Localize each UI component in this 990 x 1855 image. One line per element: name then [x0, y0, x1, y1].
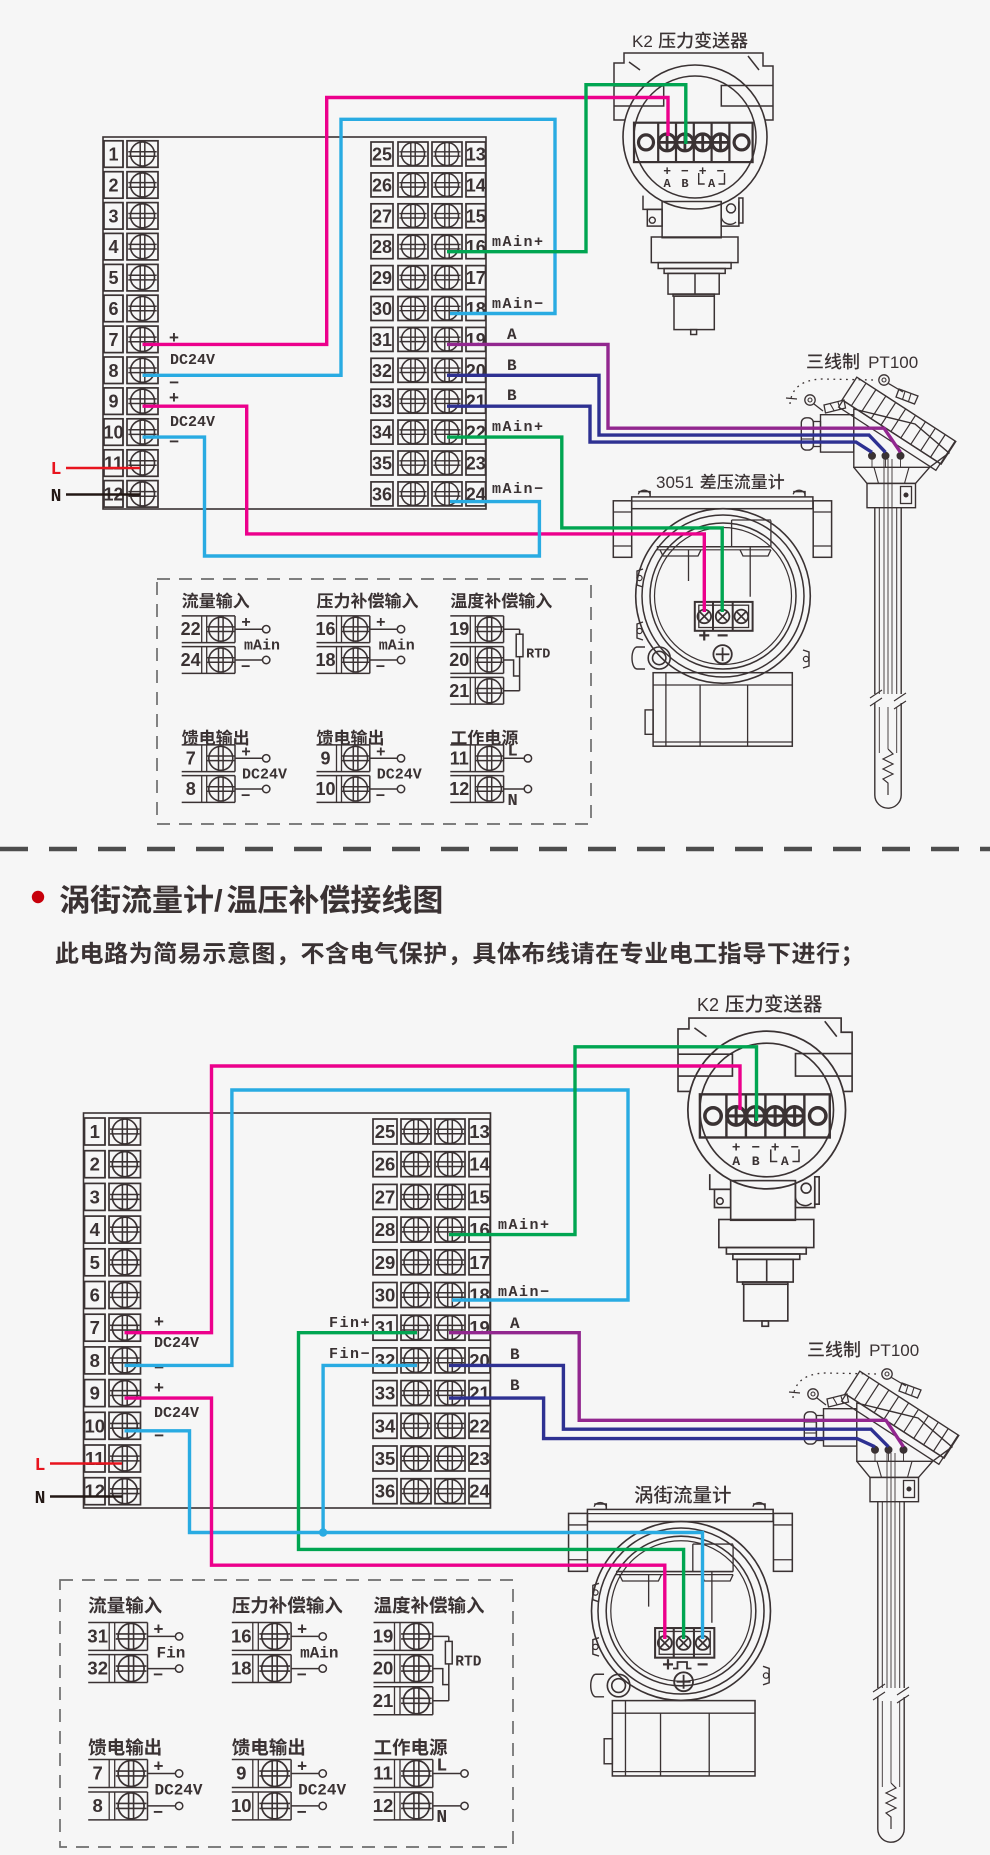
svg-text:−: −: [375, 659, 385, 677]
svg-text:12: 12: [449, 779, 469, 799]
svg-text:Fin: Fin: [157, 1645, 186, 1663]
svg-text:19: 19: [466, 330, 486, 350]
svg-text:7: 7: [108, 330, 118, 350]
svg-text:A: A: [510, 1315, 520, 1333]
svg-text:5: 5: [90, 1252, 100, 1273]
svg-text:A: A: [663, 177, 671, 191]
svg-text:9: 9: [320, 748, 330, 768]
svg-text:B: B: [507, 357, 517, 375]
svg-text:N: N: [35, 1489, 46, 1509]
svg-text:+: +: [241, 614, 251, 632]
svg-text:36: 36: [372, 484, 392, 504]
svg-text:−: −: [241, 788, 251, 806]
svg-text:A: A: [708, 177, 716, 191]
svg-text:DC24V: DC24V: [154, 1405, 199, 1422]
svg-text:17: 17: [466, 268, 486, 288]
svg-text:B: B: [681, 177, 688, 191]
svg-text:2: 2: [90, 1154, 100, 1175]
svg-text:−: −: [717, 164, 725, 179]
svg-text:+: +: [376, 614, 386, 632]
svg-text:RTD: RTD: [455, 1655, 481, 1671]
svg-text:10: 10: [85, 1415, 106, 1436]
svg-text:/: /: [214, 883, 223, 918]
svg-text:12: 12: [85, 1481, 106, 1502]
svg-text:33: 33: [375, 1383, 396, 1404]
svg-text:PT100: PT100: [869, 1341, 919, 1360]
svg-text:−: −: [717, 626, 729, 649]
svg-text:+: +: [699, 164, 707, 179]
svg-text:3: 3: [90, 1186, 100, 1207]
svg-text:31: 31: [87, 1625, 108, 1646]
svg-text:20: 20: [469, 1350, 490, 1371]
svg-text:16: 16: [469, 1219, 490, 1240]
svg-text:18: 18: [315, 650, 335, 670]
svg-text:27: 27: [375, 1186, 396, 1207]
svg-text:−: −: [296, 1804, 306, 1823]
svg-text:21: 21: [373, 1690, 394, 1711]
svg-text:16: 16: [231, 1625, 252, 1646]
svg-text:+: +: [241, 743, 251, 761]
svg-text:9: 9: [90, 1383, 100, 1404]
svg-text:32: 32: [87, 1658, 108, 1679]
svg-text:N: N: [436, 1808, 447, 1828]
svg-text:18: 18: [466, 299, 486, 319]
svg-text:mAin: mAin: [300, 1645, 338, 1663]
svg-text:6: 6: [90, 1285, 100, 1306]
svg-text:+: +: [154, 1380, 164, 1399]
svg-text:RTD: RTD: [526, 648, 550, 663]
svg-text:17: 17: [469, 1252, 490, 1273]
svg-text:24: 24: [469, 1481, 490, 1502]
svg-text:20: 20: [373, 1658, 394, 1679]
svg-text:26: 26: [375, 1154, 396, 1175]
svg-text:+: +: [662, 1655, 674, 1678]
svg-text:−: −: [296, 1667, 306, 1686]
svg-text:18: 18: [469, 1285, 490, 1306]
svg-text:31: 31: [372, 330, 392, 350]
svg-text:−: −: [153, 1667, 163, 1686]
svg-text:+: +: [169, 330, 179, 349]
svg-text:23: 23: [469, 1448, 490, 1469]
svg-text:6: 6: [108, 299, 118, 319]
svg-text:+: +: [153, 1621, 163, 1640]
svg-text:mAin−: mAin−: [492, 296, 545, 313]
svg-text:mAin: mAin: [379, 638, 415, 655]
svg-text:14: 14: [469, 1154, 490, 1175]
svg-text:8: 8: [93, 1795, 103, 1816]
svg-text:26: 26: [372, 175, 392, 195]
svg-text:mAin+: mAin+: [498, 1217, 551, 1234]
svg-text:30: 30: [375, 1285, 396, 1306]
svg-text:DC24V: DC24V: [154, 1335, 199, 1352]
svg-text:mAin+: mAin+: [492, 419, 545, 436]
svg-text:32: 32: [372, 361, 392, 381]
svg-text:29: 29: [375, 1252, 396, 1273]
svg-text:9: 9: [108, 392, 118, 412]
svg-text:29: 29: [372, 268, 392, 288]
svg-text:15: 15: [466, 206, 486, 226]
svg-text:L: L: [51, 460, 62, 480]
svg-text:Fin+: Fin+: [329, 1315, 371, 1332]
svg-text:28: 28: [375, 1219, 396, 1240]
svg-text:K2: K2: [697, 995, 719, 1015]
svg-text:27: 27: [372, 206, 392, 226]
svg-text:−: −: [241, 659, 251, 677]
svg-text:13: 13: [469, 1121, 490, 1142]
svg-text:L: L: [35, 1456, 46, 1476]
svg-text:DC24V: DC24V: [170, 352, 215, 369]
svg-text:−: −: [375, 788, 385, 806]
svg-text:16: 16: [466, 237, 486, 257]
svg-text:1: 1: [90, 1121, 100, 1142]
svg-text:11: 11: [104, 454, 123, 474]
svg-text:19: 19: [469, 1317, 490, 1338]
svg-text:+: +: [297, 1621, 307, 1640]
svg-text:DC24V: DC24V: [377, 767, 422, 784]
svg-text:A: A: [732, 1154, 740, 1169]
svg-text:−: −: [154, 1360, 164, 1379]
svg-text:19: 19: [373, 1625, 394, 1646]
svg-text:+: +: [771, 1141, 780, 1157]
svg-text:25: 25: [375, 1121, 396, 1142]
svg-text:24: 24: [181, 650, 201, 670]
svg-text:4: 4: [90, 1219, 101, 1240]
svg-text:20: 20: [466, 361, 486, 381]
svg-text:33: 33: [372, 392, 392, 412]
svg-text:1: 1: [108, 145, 118, 165]
svg-text:DC24V: DC24V: [170, 414, 215, 431]
svg-text:12: 12: [373, 1795, 394, 1816]
svg-text:A: A: [781, 1154, 789, 1169]
svg-text:19: 19: [449, 619, 469, 639]
svg-text:+: +: [154, 1314, 164, 1333]
svg-text:34: 34: [375, 1415, 396, 1436]
svg-text:mAin: mAin: [244, 638, 280, 655]
svg-text:25: 25: [372, 145, 392, 165]
svg-text:PT100: PT100: [868, 353, 918, 372]
svg-text:A: A: [507, 326, 517, 344]
svg-text:3: 3: [108, 206, 118, 226]
svg-text:+: +: [376, 743, 386, 761]
svg-text:N: N: [51, 487, 62, 507]
svg-text:8: 8: [90, 1350, 100, 1371]
svg-text:L: L: [507, 742, 517, 761]
svg-text:28: 28: [372, 237, 392, 257]
svg-text:21: 21: [466, 392, 486, 412]
svg-text:20: 20: [449, 650, 469, 670]
svg-text:DC24V: DC24V: [298, 1782, 346, 1800]
svg-text:8: 8: [108, 361, 118, 381]
svg-text:B: B: [507, 387, 517, 405]
svg-text:10: 10: [103, 423, 123, 443]
svg-text:+: +: [698, 626, 710, 649]
svg-text:35: 35: [375, 1448, 396, 1469]
svg-text:15: 15: [469, 1186, 490, 1207]
svg-text:−: −: [790, 1141, 799, 1157]
svg-text:B: B: [510, 1377, 520, 1395]
svg-text:22: 22: [466, 423, 486, 443]
svg-text:8: 8: [186, 779, 196, 799]
svg-text:7: 7: [186, 748, 196, 768]
svg-text:+: +: [297, 1759, 307, 1778]
svg-text:11: 11: [373, 1763, 393, 1784]
svg-text:5: 5: [108, 268, 118, 288]
svg-text:13: 13: [466, 145, 486, 165]
svg-text:30: 30: [372, 299, 392, 319]
svg-text:21: 21: [449, 681, 469, 701]
svg-text:22: 22: [181, 619, 201, 639]
svg-text:mAin+: mAin+: [492, 234, 545, 251]
svg-text:10: 10: [231, 1795, 252, 1816]
svg-text:B: B: [752, 1154, 760, 1169]
svg-text:N: N: [507, 792, 517, 811]
svg-text:L: L: [436, 1757, 447, 1777]
svg-text:7: 7: [93, 1763, 103, 1784]
svg-text:K2: K2: [632, 32, 653, 51]
svg-text:+: +: [153, 1759, 163, 1778]
svg-text:32: 32: [375, 1350, 396, 1371]
svg-text:23: 23: [466, 454, 486, 474]
svg-text:−: −: [697, 1655, 709, 1678]
svg-text:9: 9: [236, 1763, 246, 1784]
svg-text:11: 11: [450, 748, 469, 768]
svg-text:DC24V: DC24V: [155, 1782, 203, 1800]
svg-text:16: 16: [315, 619, 335, 639]
svg-text:mAin−: mAin−: [492, 481, 545, 498]
svg-text:11: 11: [85, 1448, 105, 1469]
svg-text:14: 14: [466, 175, 486, 195]
svg-text:18: 18: [231, 1658, 252, 1679]
svg-text:4: 4: [108, 237, 118, 257]
svg-text:34: 34: [372, 423, 392, 443]
svg-text:−: −: [153, 1804, 163, 1823]
svg-text:10: 10: [315, 779, 335, 799]
svg-text:22: 22: [469, 1415, 490, 1436]
svg-text:DC24V: DC24V: [242, 767, 287, 784]
svg-text:Fin−: Fin−: [329, 1346, 371, 1363]
svg-text:31: 31: [375, 1317, 396, 1338]
svg-text:3051: 3051: [656, 473, 694, 492]
svg-text:B: B: [510, 1346, 520, 1364]
svg-text:2: 2: [108, 175, 118, 195]
svg-text:36: 36: [375, 1481, 396, 1502]
svg-text:35: 35: [372, 454, 392, 474]
svg-text:7: 7: [90, 1317, 100, 1338]
svg-text:21: 21: [469, 1383, 490, 1404]
